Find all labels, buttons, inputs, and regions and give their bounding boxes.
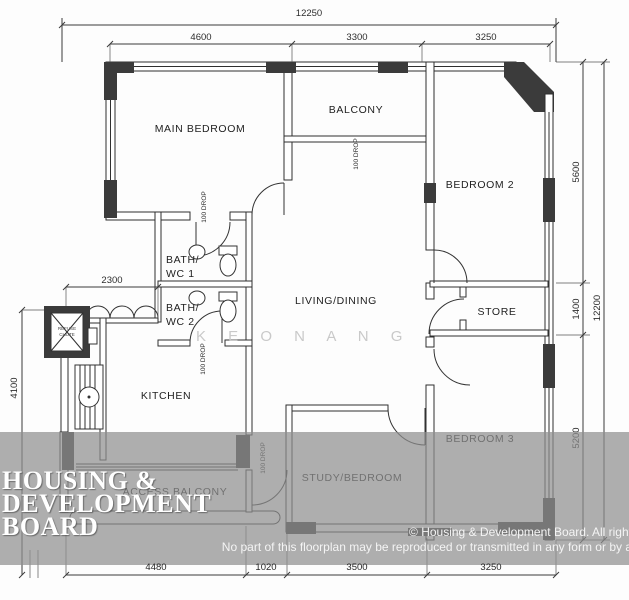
dim-top-seg1: 4600 xyxy=(190,32,211,43)
dim-top-overall: 12250 xyxy=(296,8,322,19)
drop-label-kitchen: 100 DROP xyxy=(200,343,207,374)
floorplan-page: MAIN BEDROOM BALCONY BEDROOM 2 LIVING/DI… xyxy=(0,0,629,600)
room-label-bath1-line2: WC 1 xyxy=(166,268,195,280)
service-louvre xyxy=(75,365,103,429)
dim-bottom-seg4: 3250 xyxy=(480,562,501,573)
dim-top-seg3: 3250 xyxy=(475,32,496,43)
room-label-living-dining: LIVING/DINING xyxy=(295,295,377,307)
room-label-bath2-line2: WC 2 xyxy=(166,316,195,328)
floorplan-drawing: MAIN BEDROOM BALCONY BEDROOM 2 LIVING/DI… xyxy=(0,0,629,600)
dim-left-small: 2300 xyxy=(101,275,122,286)
dim-bottom-seg2: 1020 xyxy=(255,562,276,573)
drop-label-balcony: 100 DROP xyxy=(353,138,360,169)
name-watermark: K E O N A N G xyxy=(196,328,411,345)
copyright-line2: No part of this floorplan may be reprodu… xyxy=(222,540,629,554)
room-label-bath1-line1: BATH/ xyxy=(166,254,199,266)
room-label-main-bedroom: MAIN BEDROOM xyxy=(155,123,246,135)
branding-line3: BOARD xyxy=(2,512,98,541)
dim-right-seg2: 1400 xyxy=(571,298,582,319)
copyright-line1: © Housing & Development Board. All right xyxy=(409,525,629,539)
dim-right-overall: 12200 xyxy=(592,295,603,321)
dim-bottom-seg1: 4480 xyxy=(145,562,166,573)
dim-left-vertical: 4100 xyxy=(9,377,20,398)
room-label-bedroom2: BEDROOM 2 xyxy=(446,179,514,191)
dim-top-seg2: 3300 xyxy=(346,32,367,43)
room-label-kitchen: KITCHEN xyxy=(141,390,191,402)
refuse-chute-label-line2: CHUTE xyxy=(59,332,75,337)
room-label-bath2-line1: BATH/ xyxy=(166,302,199,314)
refuse-chute-label-line1: REFUSE xyxy=(58,326,76,331)
dim-bottom-seg3: 3500 xyxy=(346,562,367,573)
room-label-balcony: BALCONY xyxy=(329,104,383,116)
room-label-store: STORE xyxy=(478,306,517,318)
drop-label-bedroom: 100 DROP xyxy=(201,191,208,222)
dim-right-seg1: 5600 xyxy=(571,161,582,182)
